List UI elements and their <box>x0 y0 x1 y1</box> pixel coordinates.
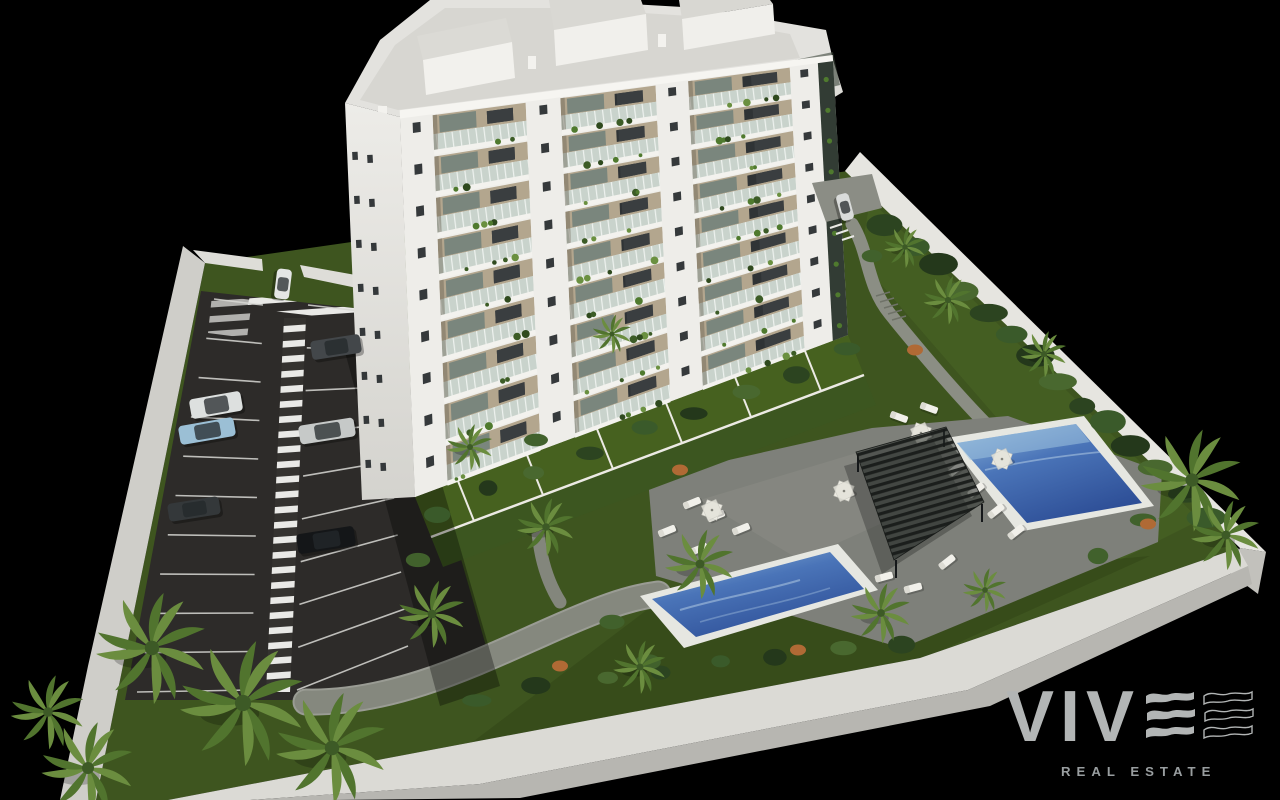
flowering-bush-orange <box>1140 519 1156 530</box>
side-window <box>358 284 364 292</box>
pier-window <box>802 100 810 109</box>
side-window <box>362 372 368 380</box>
flowering-bush-orange <box>672 465 688 476</box>
balcony-plant <box>827 138 832 143</box>
pier-window <box>418 247 426 259</box>
pier-window <box>413 122 421 133</box>
balcony-plant <box>637 334 643 340</box>
balcony-plant <box>773 95 780 102</box>
balcony-plant <box>485 422 493 430</box>
balcony-plant <box>706 278 711 283</box>
pier-window <box>416 205 424 217</box>
balcony-plant <box>764 97 768 101</box>
balcony-plant <box>761 328 767 334</box>
parasol-pole <box>1001 458 1004 461</box>
side-window <box>378 419 384 427</box>
hedge-bush <box>919 253 958 275</box>
balcony-plant <box>651 257 659 265</box>
balcony-plant <box>765 360 771 366</box>
side-window <box>375 331 381 339</box>
garden-bush <box>763 649 787 666</box>
balcony-plant <box>453 187 458 192</box>
logo-letters: VIV <box>1006 677 1140 757</box>
garden-bush <box>523 466 544 479</box>
balcony-plant <box>748 265 754 271</box>
balcony-plant <box>500 378 505 383</box>
pier-window <box>544 219 552 230</box>
balcony-plant <box>613 157 619 163</box>
balcony-plant <box>591 312 597 318</box>
balcony-plant <box>655 400 662 407</box>
balcony-plant <box>777 224 783 230</box>
pier-window <box>421 330 429 342</box>
balcony-plant <box>626 118 632 124</box>
balcony-plant <box>834 262 839 267</box>
parasol-pole <box>843 490 846 493</box>
balcony-plant <box>743 99 751 107</box>
balcony-plant <box>755 295 763 303</box>
balcony-plant <box>763 228 768 233</box>
pier-window <box>800 69 808 78</box>
balcony-plant <box>522 330 530 338</box>
balcony-plant <box>722 343 726 347</box>
garden-bush <box>576 447 604 460</box>
balcony-plant <box>485 303 489 307</box>
hedge-bush <box>970 304 1008 322</box>
balcony-plant <box>754 230 761 237</box>
garden-bush <box>462 694 491 706</box>
balcony-plant <box>716 137 724 145</box>
balcony-plant <box>715 311 719 315</box>
logo-wave-e-filled-icon <box>1146 692 1195 738</box>
balcony-plant <box>591 236 596 241</box>
balcony-plant <box>584 275 591 282</box>
flowering-bush-orange <box>907 345 923 356</box>
garden-bush <box>888 636 915 654</box>
balcony-plant <box>656 366 660 370</box>
garden-bush <box>680 407 708 420</box>
balcony-plant <box>582 238 588 244</box>
pier-window <box>539 105 547 115</box>
balcony-plant <box>461 474 466 479</box>
balcony-plant <box>585 390 590 395</box>
garden-bush <box>834 342 861 355</box>
garden-bush <box>862 250 883 262</box>
balcony-plant <box>492 260 497 265</box>
hedge-bush <box>1111 435 1150 457</box>
garden-bush <box>479 480 498 496</box>
side-window <box>352 152 358 160</box>
balcony-plant <box>463 183 471 191</box>
balcony-plant <box>495 139 501 145</box>
logo-tagline: REAL ESTATE <box>1061 764 1216 779</box>
balcony-plant <box>455 477 459 481</box>
hedge-bush <box>1039 373 1077 390</box>
garden-bush <box>783 366 810 383</box>
side-window <box>371 243 377 251</box>
side-window <box>354 196 360 204</box>
balcony-plant <box>627 228 632 233</box>
balcony-plant <box>576 276 583 283</box>
garden-bush <box>1088 548 1109 564</box>
balcony-plant <box>835 292 840 297</box>
balcony-plant <box>640 370 645 375</box>
balcony-plant <box>750 166 754 170</box>
pier-window <box>804 131 812 140</box>
chimney <box>658 34 666 47</box>
aerial-render-scene: VIV REAL ESTATE <box>0 0 1280 800</box>
balcony-plant <box>753 196 761 204</box>
balcony-plant <box>504 296 511 303</box>
balcony-plant <box>512 254 519 261</box>
balcony-plant <box>510 137 515 142</box>
balcony-plant <box>768 260 773 265</box>
balcony-plant <box>837 323 842 328</box>
garden-bush <box>733 385 761 400</box>
flowering-bush-orange <box>790 645 806 656</box>
hedge-bush <box>1090 410 1126 433</box>
hedge-bush <box>996 326 1028 344</box>
garden-bush <box>599 615 624 630</box>
balcony-plant <box>596 122 603 129</box>
garden-bush <box>632 420 658 434</box>
balcony-plant <box>736 236 741 241</box>
balcony-plant <box>626 412 631 417</box>
balcony-plant <box>741 134 745 138</box>
balcony-plant <box>720 206 725 211</box>
side-window <box>377 375 383 383</box>
side-window <box>373 287 379 295</box>
balcony-plant <box>583 161 591 169</box>
balcony-plant <box>777 193 781 197</box>
balcony-plant <box>636 190 640 194</box>
balcony-plant <box>748 198 755 205</box>
car-glass-roof <box>277 277 290 292</box>
side-window <box>367 155 373 163</box>
balcony-plant <box>824 77 829 82</box>
pier-window <box>671 157 679 167</box>
balcony-plant <box>503 258 508 263</box>
balcony-plant <box>620 378 624 382</box>
side-window <box>363 416 369 424</box>
balcony-plant <box>727 103 732 108</box>
side-window <box>380 463 386 471</box>
side-window <box>360 328 366 336</box>
balcony-plant <box>649 332 653 336</box>
parasol-pole <box>711 509 714 512</box>
balcony-plant <box>630 335 638 343</box>
property-render-viewport: VIV REAL ESTATE <box>0 0 1280 800</box>
garden-bush <box>406 553 430 567</box>
pier-window <box>670 122 678 132</box>
balcony-plant <box>608 270 613 275</box>
balcony-plant <box>829 169 834 174</box>
balcony-plant <box>481 221 488 228</box>
pier-window <box>419 289 427 301</box>
garden-bush <box>524 434 548 447</box>
balcony-plant <box>465 267 469 271</box>
balcony-plant <box>473 223 480 230</box>
garden-bush <box>521 677 550 694</box>
hedge-bush <box>1069 398 1095 415</box>
balcony-plant <box>783 353 790 360</box>
flowering-bush-orange <box>552 661 568 672</box>
balcony-plant <box>505 377 510 382</box>
chimney <box>528 56 536 69</box>
pier-window <box>668 87 676 96</box>
balcony-plant <box>620 414 626 420</box>
balcony-plant <box>825 108 830 113</box>
pier-window <box>414 164 422 175</box>
balcony-plant <box>639 153 643 157</box>
balcony-plant <box>513 333 521 341</box>
garden-bush <box>711 655 730 667</box>
balcony-plant <box>791 351 796 356</box>
pier-window <box>543 181 551 192</box>
balcony-plant <box>584 201 588 205</box>
side-window <box>369 199 375 207</box>
balcony-plant <box>792 319 796 323</box>
balcony-plant <box>635 297 643 305</box>
garden-bush <box>424 507 450 523</box>
side-window <box>356 240 362 248</box>
balcony-plant <box>616 119 623 126</box>
pier-window <box>541 143 549 154</box>
balcony-plant <box>746 367 752 373</box>
balcony-plant <box>571 126 578 133</box>
balcony-plant <box>725 136 731 142</box>
balcony-plant <box>488 221 493 226</box>
hedge-bush <box>866 214 902 236</box>
side-window <box>365 460 371 468</box>
garden-bush <box>598 672 618 684</box>
balcony-plant <box>598 160 603 165</box>
balcony-plant <box>641 407 647 413</box>
garden-bush <box>830 641 856 655</box>
